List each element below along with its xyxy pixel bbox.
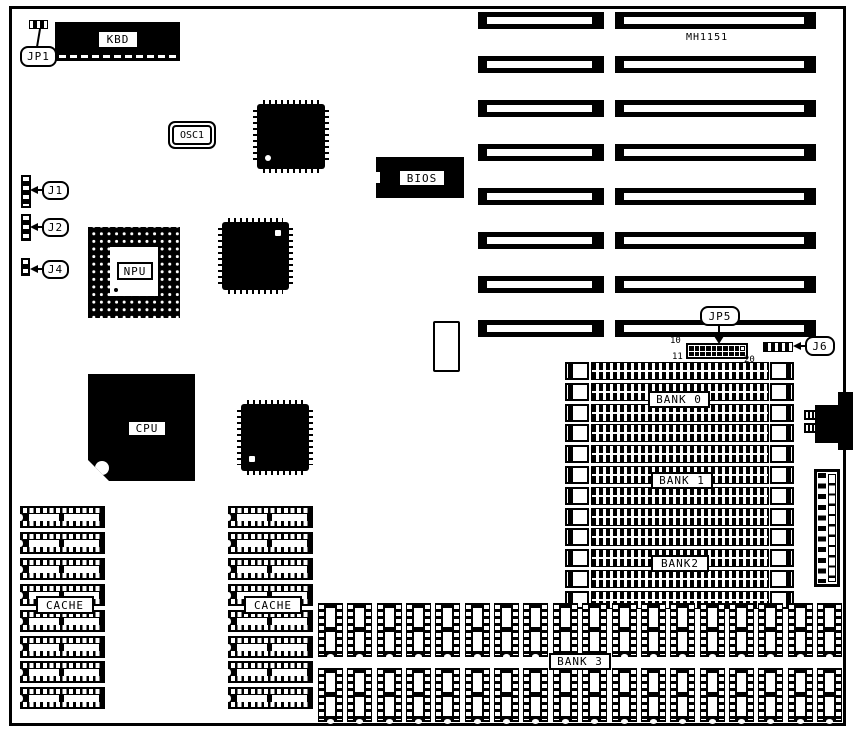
bank3-dram-chip bbox=[318, 668, 343, 722]
qfp-pins bbox=[325, 110, 329, 163]
chip-window bbox=[473, 632, 482, 651]
chip-window bbox=[29, 644, 59, 651]
dip-pins bbox=[23, 521, 102, 526]
chip-window bbox=[443, 608, 452, 627]
dip-pins bbox=[23, 586, 102, 591]
dip-pins bbox=[231, 547, 310, 552]
cache-chip bbox=[20, 506, 105, 528]
bank3-dram-chip bbox=[494, 668, 519, 722]
j4-header bbox=[21, 258, 30, 276]
chip-notch bbox=[679, 654, 686, 659]
chip-window bbox=[502, 632, 511, 651]
dip-pins bbox=[337, 605, 342, 655]
dip-pins bbox=[748, 605, 753, 655]
dip-pins bbox=[231, 663, 310, 668]
chip-window bbox=[29, 669, 59, 676]
dip-pins bbox=[777, 605, 782, 655]
npu-label: NPU bbox=[117, 262, 153, 280]
chip-window bbox=[64, 669, 99, 676]
chip-window bbox=[649, 608, 658, 627]
chip-window bbox=[502, 673, 511, 692]
simm-socket bbox=[565, 508, 794, 526]
simm-body bbox=[591, 424, 769, 442]
cpu-label: CPU bbox=[127, 420, 167, 437]
bank3-dram-chip bbox=[494, 603, 519, 657]
dip-pins bbox=[231, 689, 310, 694]
dip-pins bbox=[466, 605, 471, 655]
bank3-dram-chip bbox=[465, 668, 490, 722]
simm-body bbox=[591, 445, 769, 463]
qfp-chip bbox=[241, 404, 309, 471]
j1-header bbox=[21, 175, 31, 208]
simm-latch-right bbox=[770, 424, 794, 442]
chip-window bbox=[766, 697, 775, 716]
chip-notch bbox=[709, 654, 716, 659]
bank3-dram-chip bbox=[612, 668, 637, 722]
pin1-dot bbox=[249, 456, 255, 462]
qfp-pins bbox=[247, 471, 303, 475]
dip-pins bbox=[396, 670, 401, 720]
j2-callout: J2 bbox=[42, 218, 69, 237]
qfp-pins bbox=[253, 110, 257, 163]
chip-notch bbox=[797, 654, 804, 659]
simm-body bbox=[591, 362, 769, 380]
dip-pins bbox=[396, 605, 401, 655]
simm-latch-right bbox=[770, 466, 794, 484]
chip-window bbox=[708, 608, 717, 627]
chip-notch bbox=[503, 654, 510, 659]
dip-pins bbox=[454, 670, 459, 720]
jp5-pin bbox=[689, 346, 694, 351]
isa-slot-left-bar bbox=[478, 232, 604, 249]
dip-pins bbox=[583, 605, 588, 655]
jp5-pin bbox=[729, 346, 734, 351]
chip-notch bbox=[226, 644, 231, 651]
chip-window bbox=[237, 618, 267, 625]
chip-window bbox=[473, 697, 482, 716]
dip-pins bbox=[524, 605, 529, 655]
isa-slot-right-bar bbox=[615, 12, 816, 29]
bank3-dram-chip bbox=[377, 603, 402, 657]
chip-window bbox=[531, 697, 540, 716]
jp5-pin bbox=[706, 346, 711, 351]
chip-window bbox=[237, 540, 267, 547]
jp5-pin bbox=[695, 352, 700, 357]
chip-window bbox=[708, 673, 717, 692]
kbd-label: KBD bbox=[98, 31, 138, 48]
bank3-dram-chip bbox=[523, 668, 548, 722]
jp5-pin bbox=[689, 352, 694, 357]
dip-pins bbox=[601, 605, 606, 655]
simm-latch-left bbox=[565, 528, 589, 546]
bank3-dram-chip bbox=[612, 603, 637, 657]
dip-pins bbox=[689, 605, 694, 655]
dip-pins bbox=[484, 670, 489, 720]
qfp-pins bbox=[289, 228, 293, 284]
chip-window bbox=[796, 673, 805, 692]
dip-pins bbox=[689, 670, 694, 720]
dip-pins bbox=[671, 670, 676, 720]
chip-window bbox=[796, 608, 805, 627]
chip-notch bbox=[226, 669, 231, 676]
chip-window bbox=[385, 673, 394, 692]
qfp-pins bbox=[247, 400, 303, 404]
chip-notch bbox=[376, 172, 380, 183]
dip-pins bbox=[572, 670, 577, 720]
bank3-label: BANK 3 bbox=[549, 653, 611, 670]
simm-body bbox=[591, 570, 769, 588]
chip-window bbox=[64, 566, 99, 573]
dip-pins bbox=[231, 560, 310, 565]
dip-pins bbox=[631, 605, 636, 655]
chip-window bbox=[29, 695, 59, 702]
chip-window bbox=[502, 608, 511, 627]
bank0-label: BANK 0 bbox=[648, 391, 710, 408]
chip-window bbox=[272, 540, 307, 547]
isa-slot-left-bar bbox=[478, 100, 604, 117]
dip-pins bbox=[601, 670, 606, 720]
dip-pins bbox=[231, 534, 310, 539]
simm-latch-left bbox=[565, 383, 589, 401]
jp5-pin bbox=[729, 352, 734, 357]
chip-notch bbox=[415, 654, 422, 659]
simm-latch-left bbox=[565, 362, 589, 380]
chip-notch bbox=[474, 719, 481, 724]
chip-window bbox=[414, 632, 423, 651]
dip-pins bbox=[818, 605, 823, 655]
dip-pins bbox=[719, 605, 724, 655]
chip-window bbox=[620, 697, 629, 716]
simm-latch-right bbox=[770, 383, 794, 401]
dip-pins bbox=[366, 670, 371, 720]
chip-window bbox=[620, 673, 629, 692]
chip-notch bbox=[226, 592, 231, 599]
chip-notch bbox=[738, 719, 745, 724]
chip-window bbox=[272, 644, 307, 651]
dip-pins bbox=[572, 605, 577, 655]
cache-chip bbox=[20, 636, 105, 658]
bank3-dram-chip bbox=[406, 603, 431, 657]
chip-window bbox=[561, 673, 570, 692]
isa-slot-left-bar bbox=[478, 12, 604, 29]
bank3-dram-chip bbox=[318, 603, 343, 657]
chip-window bbox=[272, 695, 307, 702]
chip-window bbox=[272, 514, 307, 521]
chip-notch bbox=[797, 719, 804, 724]
jp5-pin bbox=[735, 346, 740, 351]
dip-pins bbox=[701, 605, 706, 655]
chip-window bbox=[64, 540, 99, 547]
chip-window bbox=[64, 695, 99, 702]
chip-notch bbox=[532, 654, 539, 659]
chip-window bbox=[355, 608, 364, 627]
isa-slot-left-bar bbox=[478, 276, 604, 293]
jp5-pin bbox=[717, 346, 722, 351]
chip-notch bbox=[444, 719, 451, 724]
cache-chip bbox=[228, 687, 313, 709]
dip-pins bbox=[495, 670, 500, 720]
simm-latch-right bbox=[770, 508, 794, 526]
dip-pins bbox=[23, 534, 102, 539]
simm-latch-left bbox=[565, 466, 589, 484]
isa-slot-right-bar bbox=[615, 232, 816, 249]
bios-label: BIOS bbox=[399, 170, 445, 186]
cache-chip bbox=[20, 532, 105, 554]
isa-slot-right-bar bbox=[615, 100, 816, 117]
chip-window bbox=[414, 673, 423, 692]
dip-pins bbox=[348, 605, 353, 655]
chip-window bbox=[796, 632, 805, 651]
bank3-dram-chip bbox=[817, 603, 842, 657]
chip-notch bbox=[18, 695, 23, 702]
chip-window bbox=[385, 632, 394, 651]
dip-pins bbox=[23, 689, 102, 694]
qfp-pins bbox=[228, 290, 283, 294]
chip-notch bbox=[474, 654, 481, 659]
dip-pins bbox=[425, 605, 430, 655]
chip-window bbox=[326, 608, 335, 627]
chip-window bbox=[561, 632, 570, 651]
chip-window bbox=[825, 697, 834, 716]
jp5-pin bbox=[700, 352, 705, 357]
chip-notch bbox=[562, 719, 569, 724]
bank1-label: BANK 1 bbox=[651, 472, 713, 489]
cache-label-left: CACHE bbox=[36, 596, 94, 614]
dip-pins bbox=[748, 670, 753, 720]
motherboard-diagram: KBD JP1 OSC1 BIOS J1 J2 J4 NPU bbox=[0, 0, 853, 731]
dip-pins bbox=[554, 670, 559, 720]
chip-notch bbox=[444, 654, 451, 659]
dip-pins bbox=[789, 670, 794, 720]
simm-socket bbox=[565, 445, 794, 463]
dip-pins bbox=[319, 605, 324, 655]
jp5-callout: JP5 bbox=[700, 306, 740, 326]
cache-chip bbox=[228, 661, 313, 683]
bank3-dram-chip bbox=[670, 603, 695, 657]
dip-pins bbox=[23, 702, 102, 707]
jp5-pin bbox=[712, 352, 717, 357]
chip-notch bbox=[621, 654, 628, 659]
chip-window bbox=[443, 632, 452, 651]
power-pin-block bbox=[804, 423, 817, 433]
cache-chip bbox=[20, 558, 105, 580]
chip-window bbox=[237, 514, 267, 521]
dip-pins bbox=[583, 670, 588, 720]
chip-window bbox=[355, 632, 364, 651]
chip-window bbox=[237, 644, 267, 651]
dip-pins bbox=[730, 670, 735, 720]
chip-notch bbox=[386, 654, 393, 659]
chip-window bbox=[678, 632, 687, 651]
simm-latch-left bbox=[565, 487, 589, 505]
chip-window bbox=[590, 697, 599, 716]
chip-notch bbox=[826, 654, 833, 659]
dip-pins bbox=[660, 670, 665, 720]
edge-connector bbox=[814, 469, 840, 587]
j1-callout: J1 bbox=[42, 181, 69, 200]
qfp-chip bbox=[222, 222, 289, 290]
dip-pins bbox=[337, 670, 342, 720]
qfp-pins bbox=[237, 410, 241, 465]
bank3-dram-chip bbox=[700, 603, 725, 657]
qfp-pins bbox=[309, 410, 313, 465]
chip-window bbox=[649, 632, 658, 651]
chip-window bbox=[796, 697, 805, 716]
simm-socket bbox=[565, 362, 794, 380]
simm-body bbox=[591, 487, 769, 505]
jp5-pin bbox=[712, 346, 717, 351]
board-model-text: MH1151 bbox=[686, 30, 748, 44]
cache-chip bbox=[228, 532, 313, 554]
chip-window bbox=[355, 673, 364, 692]
chip-window bbox=[531, 673, 540, 692]
qfp-pins bbox=[263, 169, 319, 173]
bank3-dram-chip bbox=[729, 668, 754, 722]
isa-slot-left-bar bbox=[478, 56, 604, 73]
chip-notch bbox=[621, 719, 628, 724]
chip-window bbox=[237, 669, 267, 676]
simm-socket bbox=[565, 528, 794, 546]
simm-socket bbox=[565, 570, 794, 588]
chip-window bbox=[443, 673, 452, 692]
bank3-dram-chip bbox=[435, 603, 460, 657]
bank3-dram-chip bbox=[377, 668, 402, 722]
dip-pins bbox=[231, 638, 310, 643]
bank3-dram-chip bbox=[406, 668, 431, 722]
simm-latch-right bbox=[770, 445, 794, 463]
chip-notch bbox=[18, 566, 23, 573]
chip-window bbox=[29, 514, 59, 521]
simm-latch-right bbox=[770, 362, 794, 380]
chip-notch bbox=[226, 566, 231, 573]
chip-window bbox=[678, 608, 687, 627]
chip-window bbox=[414, 608, 423, 627]
dip-pins bbox=[23, 625, 102, 630]
chip-notch bbox=[18, 592, 23, 599]
chip-notch bbox=[356, 719, 363, 724]
edge-connector-pins bbox=[828, 474, 836, 582]
dip-pins bbox=[231, 521, 310, 526]
dip-pins bbox=[319, 670, 324, 720]
qfp-pins bbox=[263, 100, 319, 104]
dip-pins bbox=[495, 605, 500, 655]
dip-pins bbox=[23, 560, 102, 565]
chip-window bbox=[737, 608, 746, 627]
chip-window bbox=[590, 632, 599, 651]
dip-pins bbox=[484, 605, 489, 655]
chip-window bbox=[766, 632, 775, 651]
chip-notch bbox=[356, 654, 363, 659]
chip-notch bbox=[767, 654, 774, 659]
bank3-dram-chip bbox=[670, 668, 695, 722]
power-pin-block bbox=[804, 410, 817, 420]
simm-body bbox=[591, 528, 769, 546]
simm-socket bbox=[565, 424, 794, 442]
chip-window bbox=[649, 673, 658, 692]
dip-pins bbox=[836, 605, 841, 655]
dip-pins bbox=[23, 547, 102, 552]
qfp-pins bbox=[228, 218, 283, 222]
chip-notch bbox=[826, 719, 833, 724]
dip-pins bbox=[378, 670, 383, 720]
chip-notch bbox=[18, 540, 23, 547]
dip-pins bbox=[818, 670, 823, 720]
chip-window bbox=[29, 618, 59, 625]
dip-pins bbox=[513, 670, 518, 720]
chip-window bbox=[355, 697, 364, 716]
jp5-pin11-label: 11 bbox=[672, 353, 683, 362]
dip-pins bbox=[231, 651, 310, 656]
dip-pins bbox=[454, 605, 459, 655]
kbd-pin-row bbox=[59, 55, 176, 58]
dip-pins bbox=[719, 670, 724, 720]
dip-pins bbox=[378, 605, 383, 655]
dip-pins bbox=[231, 702, 310, 707]
chip-window bbox=[678, 697, 687, 716]
chip-window bbox=[561, 697, 570, 716]
chip-window bbox=[766, 608, 775, 627]
bank3-dram-chip bbox=[641, 668, 666, 722]
bank3-dram-chip bbox=[435, 668, 460, 722]
chip-window bbox=[590, 673, 599, 692]
chip-window bbox=[737, 673, 746, 692]
dip-pins bbox=[660, 605, 665, 655]
chip-window bbox=[443, 697, 452, 716]
dip-pins bbox=[23, 651, 102, 656]
dip-pins bbox=[436, 670, 441, 720]
chip-notch bbox=[767, 719, 774, 724]
chip-notch bbox=[226, 618, 231, 625]
isa-slot-left-bar bbox=[478, 144, 604, 161]
chip-window bbox=[737, 632, 746, 651]
chip-window bbox=[64, 514, 99, 521]
dip-pins bbox=[701, 670, 706, 720]
chip-window bbox=[531, 632, 540, 651]
dip-pins bbox=[836, 670, 841, 720]
dip-pins bbox=[554, 605, 559, 655]
simm-latch-right bbox=[770, 528, 794, 546]
simm-socket bbox=[565, 487, 794, 505]
chip-window bbox=[385, 608, 394, 627]
bank3-dram-chip bbox=[788, 603, 813, 657]
chip-window bbox=[272, 669, 307, 676]
bank3-dram-chip bbox=[582, 603, 607, 657]
chip-notch bbox=[18, 514, 23, 521]
chip-window bbox=[590, 608, 599, 627]
isa-slot-right-bar bbox=[615, 56, 816, 73]
chip-window bbox=[766, 673, 775, 692]
bank3-dram-chip bbox=[347, 668, 372, 722]
dip-pins bbox=[231, 625, 310, 630]
dip-pins bbox=[366, 605, 371, 655]
jp5-pin bbox=[723, 346, 728, 351]
chip-notch bbox=[650, 654, 657, 659]
simm-latch-right bbox=[770, 570, 794, 588]
cache-chip bbox=[228, 636, 313, 658]
simm-latch-left bbox=[565, 445, 589, 463]
chip-window bbox=[825, 608, 834, 627]
jp5-pin bbox=[723, 352, 728, 357]
bank3-dram-chip bbox=[817, 668, 842, 722]
chip-window bbox=[29, 566, 59, 573]
simm-latch-left bbox=[565, 404, 589, 422]
jp5-pin bbox=[740, 346, 745, 351]
dip-pins bbox=[231, 676, 310, 681]
chip-window bbox=[531, 608, 540, 627]
simm-latch-left bbox=[565, 508, 589, 526]
simm-latch-right bbox=[770, 487, 794, 505]
bank3-dram-chip bbox=[553, 603, 578, 657]
